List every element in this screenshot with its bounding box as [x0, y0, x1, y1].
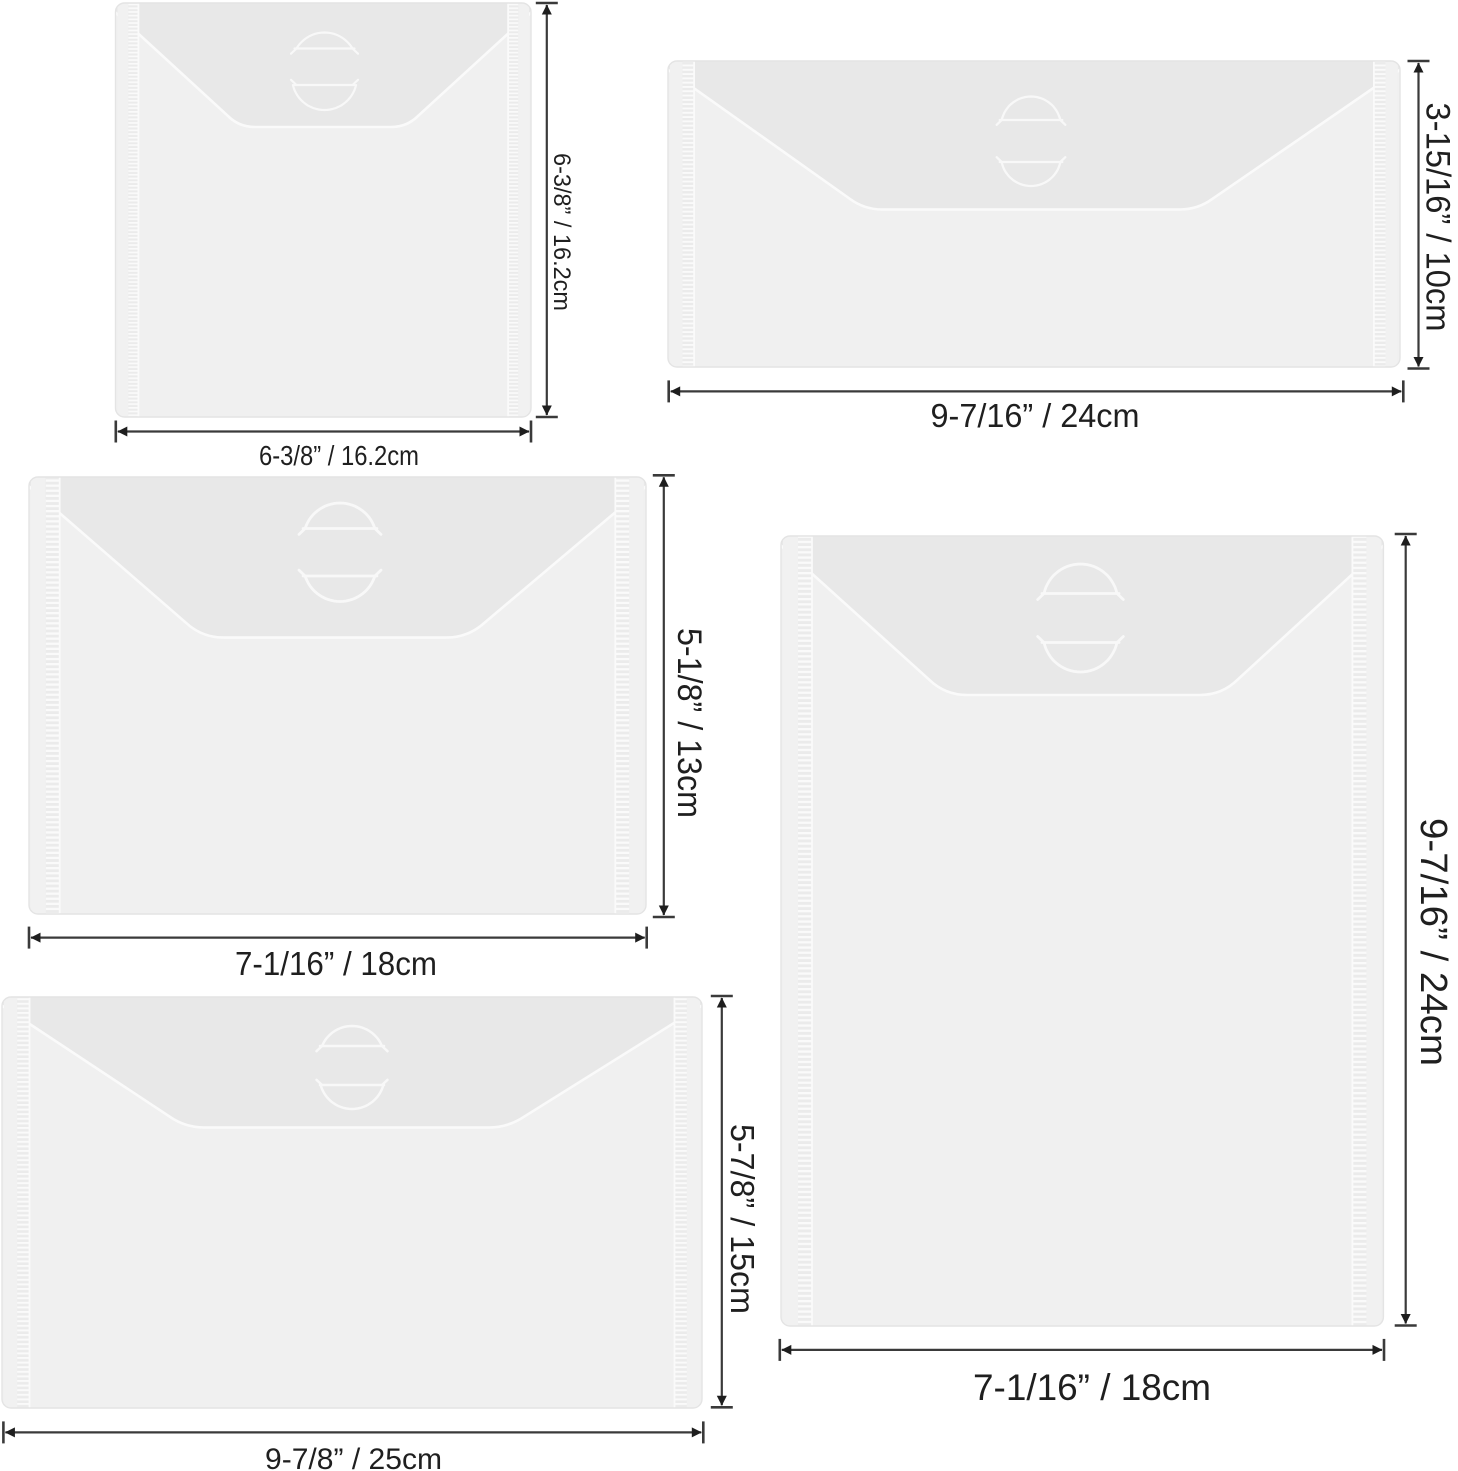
svg-text:6-3/8” / 16.2cm: 6-3/8” / 16.2cm	[548, 153, 575, 311]
svg-text:5-1/8” / 13cm: 5-1/8” / 13cm	[670, 628, 708, 818]
svg-text:3-15/16” / 10cm: 3-15/16” / 10cm	[1418, 103, 1456, 332]
svg-text:9-7/16” / 24cm: 9-7/16” / 24cm	[1412, 818, 1454, 1066]
svg-text:6-3/8” / 16.2cm: 6-3/8” / 16.2cm	[259, 440, 419, 471]
svg-text:7-1/16” / 18cm: 7-1/16” / 18cm	[235, 945, 437, 982]
svg-text:7-1/16” / 18cm: 7-1/16” / 18cm	[973, 1367, 1211, 1408]
svg-text:9-7/8” / 25cm: 9-7/8” / 25cm	[265, 1443, 442, 1471]
svg-text:9-7/16” / 24cm: 9-7/16” / 24cm	[931, 397, 1140, 434]
svg-text:5-7/8” / 15cm: 5-7/8” / 15cm	[724, 1124, 761, 1314]
